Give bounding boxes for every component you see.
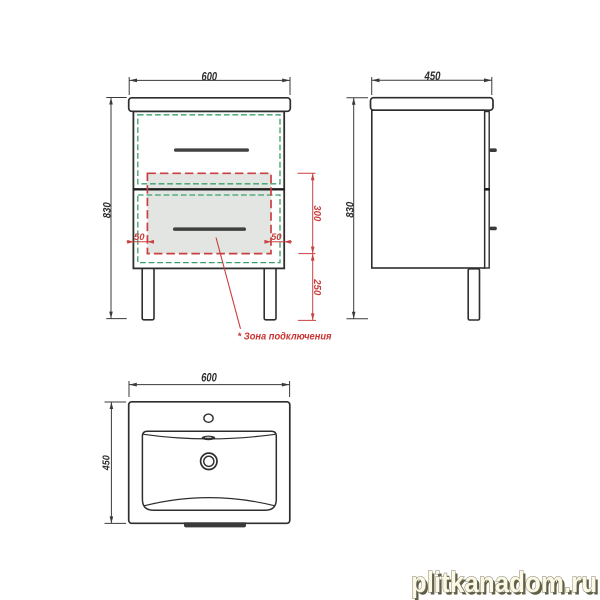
svg-text:* Зона подключения: * Зона подключения — [238, 330, 332, 342]
svg-text:50: 50 — [271, 232, 282, 243]
svg-text:50: 50 — [134, 232, 145, 243]
svg-text:450: 450 — [424, 71, 441, 83]
svg-text:830: 830 — [102, 202, 114, 219]
svg-text:450: 450 — [100, 455, 112, 471]
svg-text:plitkanadom.ru: plitkanadom.ru — [411, 566, 597, 599]
svg-text:250: 250 — [311, 278, 323, 295]
svg-text:600: 600 — [202, 71, 218, 83]
svg-text:600: 600 — [201, 372, 217, 384]
svg-text:830: 830 — [344, 201, 356, 218]
svg-text:300: 300 — [311, 205, 323, 221]
